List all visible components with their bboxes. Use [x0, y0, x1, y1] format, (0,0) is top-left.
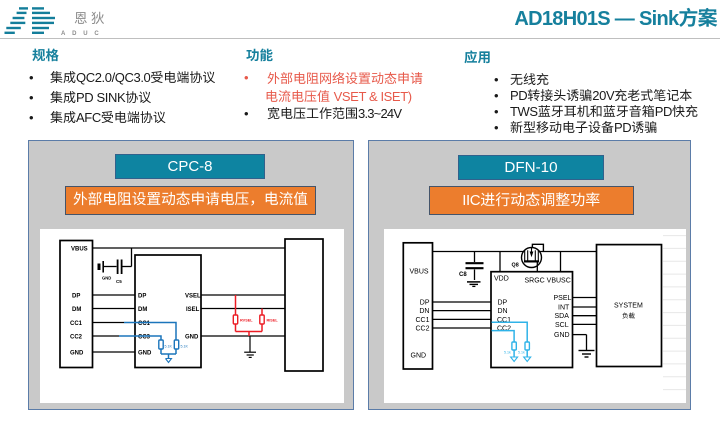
svg-text:RISEL: RISEL: [267, 319, 279, 323]
svg-text:5.1k: 5.1k: [504, 351, 511, 355]
svg-text:RVSEL: RVSEL: [240, 319, 253, 323]
svg-text:GND: GND: [70, 351, 84, 357]
svg-text:DN: DN: [419, 308, 429, 315]
svg-text:ISEL: ISEL: [186, 307, 200, 313]
svg-text:INT: INT: [558, 305, 570, 312]
svg-text:SYSTEM: SYSTEM: [614, 303, 643, 310]
svg-text:CC1: CC1: [415, 317, 429, 324]
svg-text:VDD: VDD: [494, 276, 509, 283]
svg-text:DP: DP: [420, 300, 430, 307]
svg-text:DM: DM: [138, 307, 147, 313]
svg-text:C8: C8: [459, 272, 467, 278]
svg-text:DM: DM: [72, 307, 81, 313]
svg-text:CC2: CC2: [70, 335, 83, 341]
svg-text:SDA: SDA: [555, 313, 570, 320]
svg-text:DP: DP: [138, 294, 146, 300]
svg-text:SRGC VBUSC: SRGC VBUSC: [525, 278, 571, 285]
svg-text:GND: GND: [102, 276, 111, 281]
svg-text:GND: GND: [554, 332, 570, 339]
svg-text:VSEL: VSEL: [185, 294, 201, 300]
svg-text:5.1K: 5.1K: [165, 345, 173, 349]
svg-text:5.1K: 5.1K: [181, 345, 189, 349]
svg-text:SCL: SCL: [555, 322, 569, 329]
svg-text:5.1k: 5.1k: [518, 351, 525, 355]
svg-text:GND: GND: [411, 353, 427, 360]
svg-text:VBUS: VBUS: [71, 247, 88, 253]
svg-text:C5: C5: [116, 279, 122, 284]
svg-text:CC2: CC2: [415, 326, 429, 333]
svg-text:恩狄: 恩狄: [74, 7, 108, 27]
svg-text:GND: GND: [138, 351, 152, 357]
svg-text:PSEL: PSEL: [554, 295, 572, 302]
svg-text:DP: DP: [72, 294, 80, 300]
svg-text:GND: GND: [185, 335, 199, 341]
svg-text:Q8: Q8: [512, 263, 519, 269]
svg-text:CC2: CC2: [497, 326, 511, 333]
svg-text:DP: DP: [498, 300, 508, 307]
svg-text:负载: 负载: [622, 310, 636, 320]
svg-text:DN: DN: [498, 308, 508, 315]
svg-text:ADUC: ADUC: [61, 31, 106, 37]
svg-text:CC1: CC1: [70, 321, 83, 327]
svg-text:VBUS: VBUS: [410, 269, 429, 276]
